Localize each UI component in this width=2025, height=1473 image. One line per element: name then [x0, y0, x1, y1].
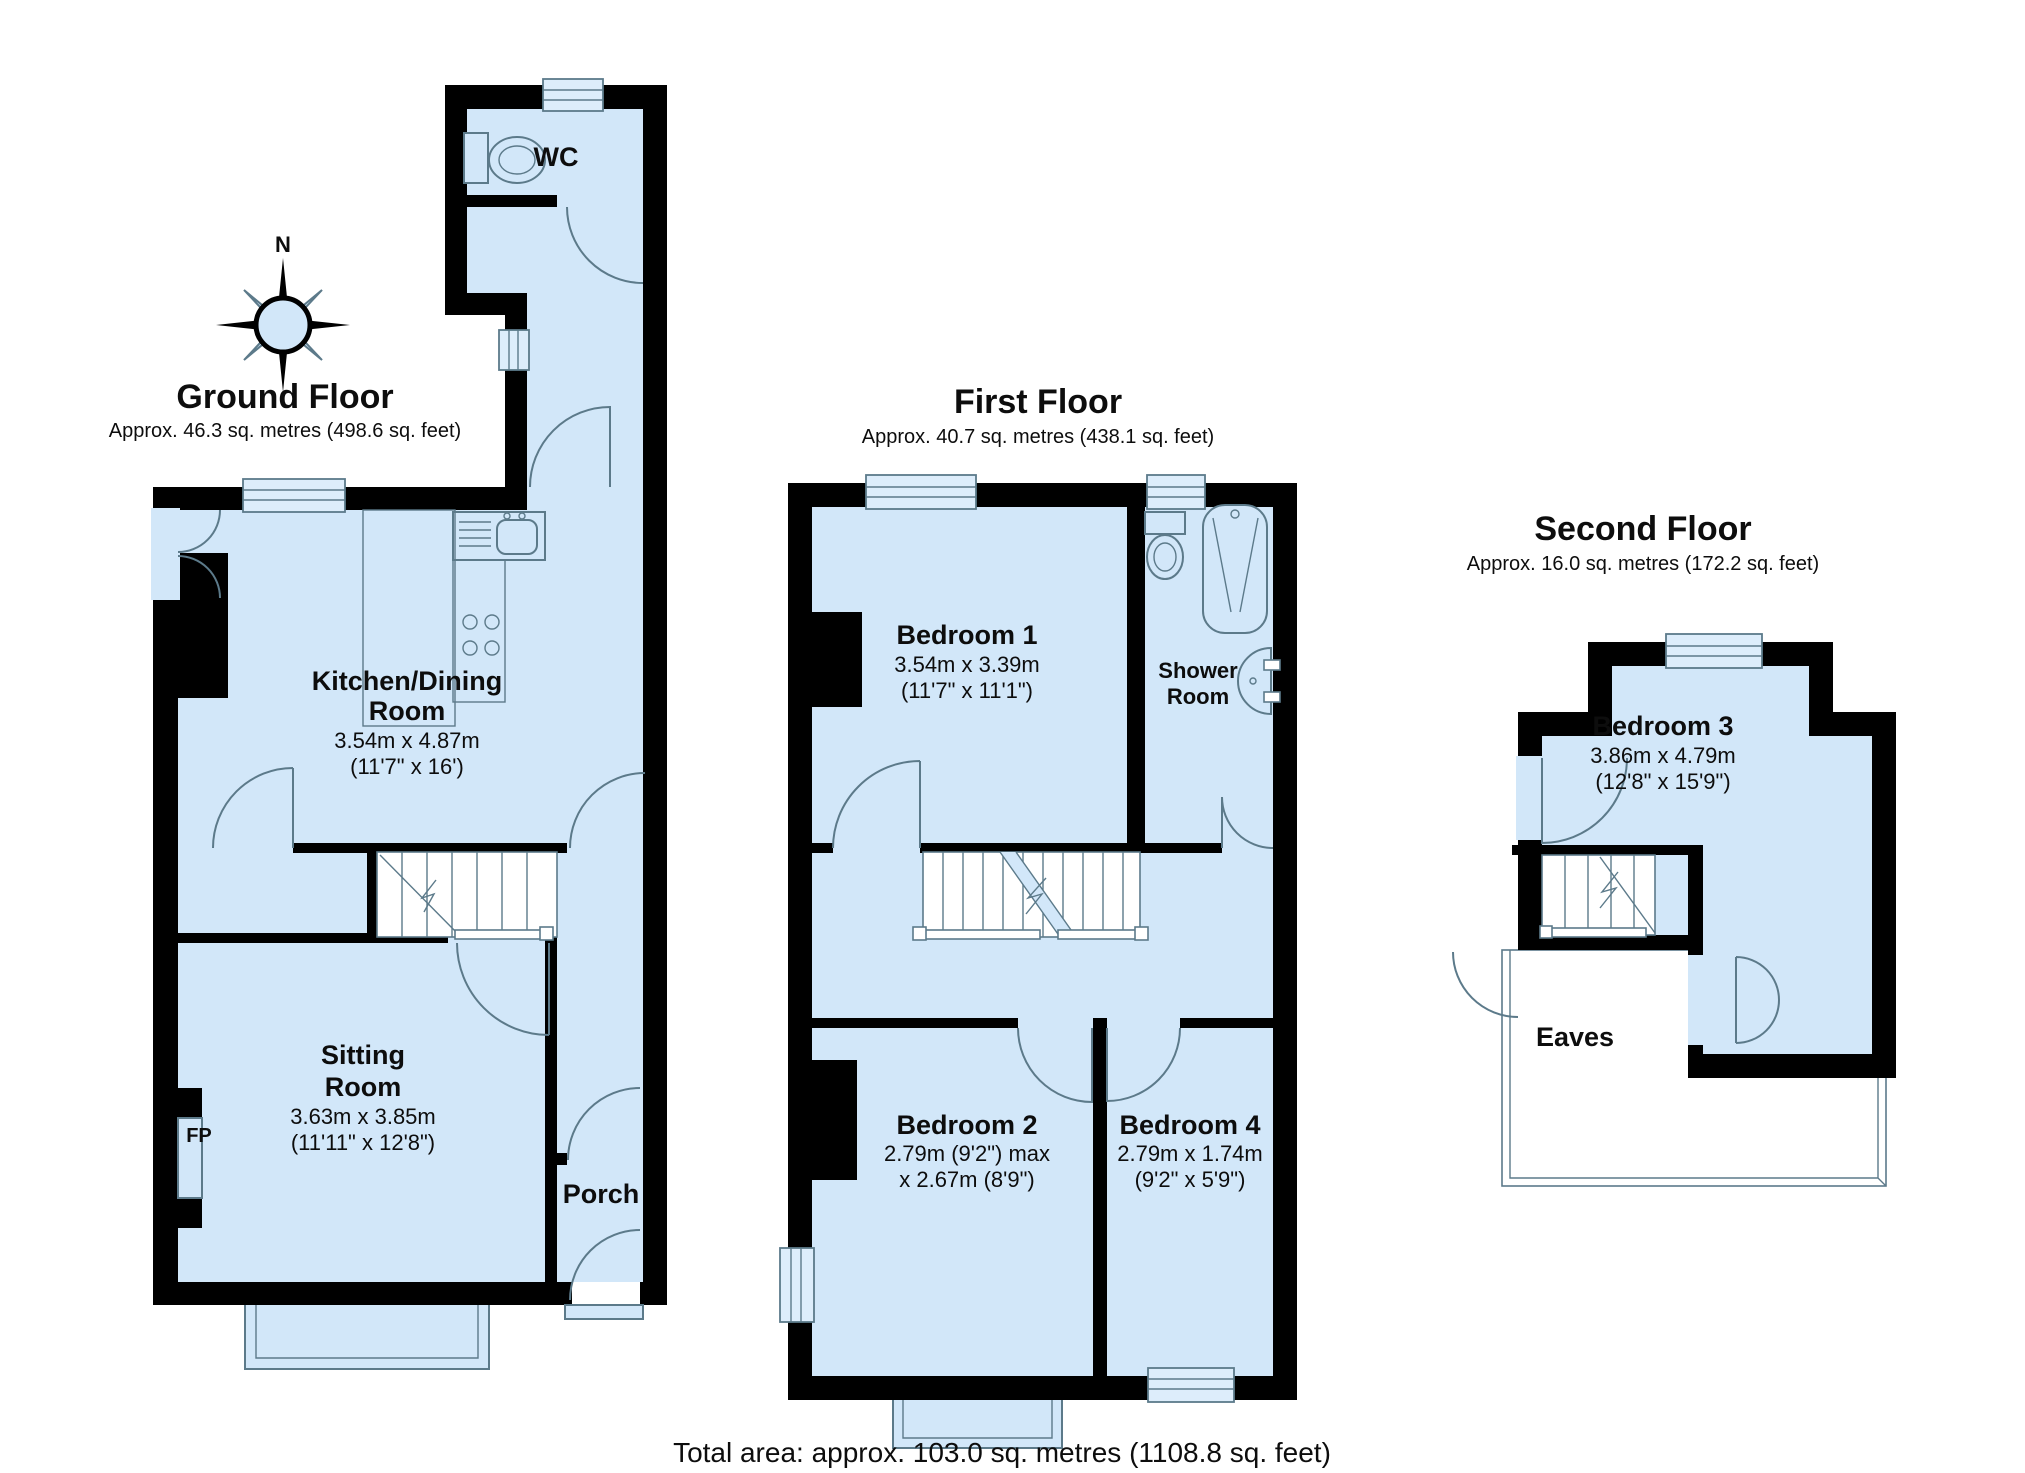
- room-label-bedroom4: Bedroom 4: [1119, 1110, 1260, 1140]
- compass-icon: [216, 258, 350, 392]
- room-label-sitting-line2: Room: [325, 1072, 402, 1102]
- first-floor-title: First Floor: [954, 383, 1122, 421]
- floorplan-drawing: N Ground Floor Approx. 46.3 sq. metres (…: [0, 0, 2025, 1473]
- room-size-kitchen-metric: 3.54m x 4.87m: [334, 728, 480, 753]
- window: [866, 475, 976, 509]
- first-floor-area: [812, 507, 1273, 1376]
- room-size-bedroom2-line2: x 2.67m (8'9"): [899, 1167, 1035, 1192]
- room-size-bedroom3-imperial: (12'8" x 15'9"): [1595, 769, 1730, 794]
- window: [543, 79, 603, 111]
- ground-floor-plan: N Ground Floor Approx. 46.3 sq. metres (…: [109, 79, 667, 1369]
- second-floor-plan: Second Floor Approx. 16.0 sq. metres (17…: [1453, 510, 1896, 1186]
- room-label-eaves: Eaves: [1536, 1022, 1614, 1052]
- first-floor-plan: First Floor Approx. 40.7 sq. metres (438…: [780, 383, 1297, 1448]
- fireplace-side: [178, 1198, 202, 1228]
- room-size-bedroom1-imperial: (11'7" x 11'1"): [901, 678, 1033, 703]
- ground-floor-area-label: Approx. 46.3 sq. metres (498.6 sq. feet): [109, 420, 461, 442]
- window: [1666, 634, 1762, 668]
- first-floor-area-label: Approx. 40.7 sq. metres (438.1 sq. feet): [862, 426, 1214, 448]
- room-label-sitting-line1: Sitting: [321, 1040, 405, 1070]
- room-size-sitting-imperial: (11'11" x 12'8"): [291, 1130, 435, 1155]
- room-size-bedroom2-line1: 2.79m (9'2") max: [884, 1141, 1050, 1166]
- compass-north-label: N: [275, 232, 291, 257]
- room-size-sitting-metric: 3.63m x 3.85m: [290, 1104, 436, 1129]
- room-label-porch: Porch: [563, 1179, 640, 1209]
- window: [780, 1248, 814, 1322]
- porch-step: [565, 1305, 643, 1319]
- stairs-icon: [377, 852, 557, 940]
- room-label-fireplace: FP: [186, 1125, 212, 1147]
- window: [243, 479, 345, 512]
- room-label-bedroom1: Bedroom 1: [896, 620, 1037, 650]
- room-label-bedroom2: Bedroom 2: [896, 1110, 1037, 1140]
- toilet-icon: [1145, 512, 1185, 579]
- window: [1148, 1368, 1234, 1402]
- chimney-breast: [812, 1060, 857, 1180]
- room-size-bedroom4-imperial: (9'2" x 5'9"): [1135, 1167, 1246, 1192]
- window: [499, 330, 529, 370]
- room-size-bedroom3-metric: 3.86m x 4.79m: [1590, 743, 1736, 768]
- room-label-shower-line2: Room: [1167, 684, 1229, 709]
- stairs-icon: [1540, 855, 1655, 938]
- stairs-icon: [913, 852, 1148, 940]
- total-area-label: Total area: approx. 103.0 sq. metres (11…: [673, 1437, 1331, 1468]
- cupboard-opening: [1688, 955, 1703, 1045]
- room-size-bedroom1-metric: 3.54m x 3.39m: [894, 652, 1040, 677]
- chimney-breast: [812, 612, 862, 707]
- shower-icon: [1203, 505, 1267, 633]
- room-label-wc: WC: [534, 142, 579, 172]
- door-opening: [1516, 756, 1544, 840]
- room-size-kitchen-imperial: (11'7" x 16'): [350, 754, 464, 779]
- room-label-bedroom3: Bedroom 3: [1592, 711, 1733, 741]
- bay-window: [245, 1305, 489, 1369]
- chimney-breast: [178, 553, 228, 698]
- window: [1147, 475, 1205, 509]
- patio-door-opening: [151, 508, 180, 600]
- fireplace-side: [178, 1088, 202, 1118]
- second-floor-title: Second Floor: [1534, 510, 1751, 548]
- ground-floor-title: Ground Floor: [176, 378, 393, 416]
- floorplan-page: N Ground Floor Approx. 46.3 sq. metres (…: [0, 0, 2025, 1473]
- room-size-bedroom4-metric: 2.79m x 1.74m: [1117, 1141, 1263, 1166]
- room-label-kitchen-line2: Room: [369, 696, 446, 726]
- sink-icon: [453, 512, 545, 560]
- room-label-shower-line1: Shower: [1158, 658, 1238, 683]
- second-floor-area-label: Approx. 16.0 sq. metres (172.2 sq. feet): [1467, 553, 1819, 575]
- room-label-kitchen-line1: Kitchen/Dining: [312, 666, 503, 696]
